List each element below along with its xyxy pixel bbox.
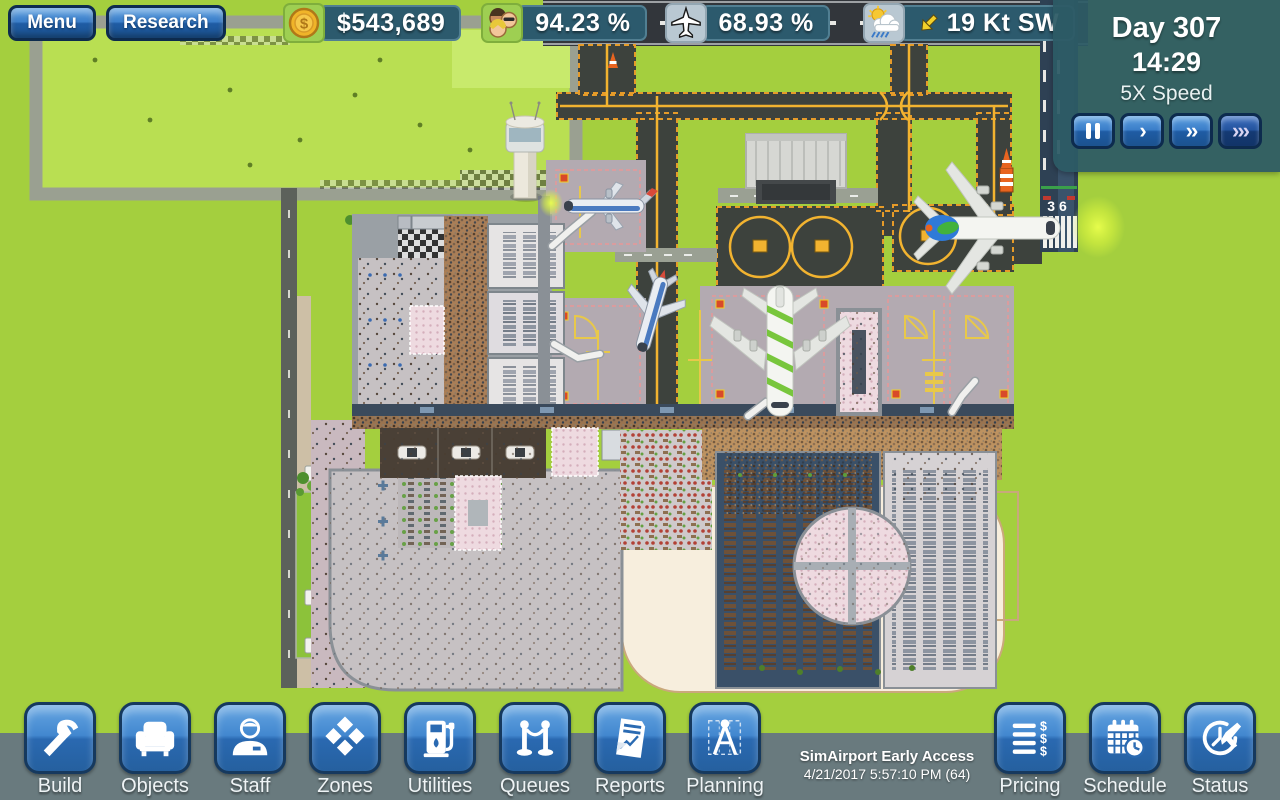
zones-button[interactable] <box>309 702 381 774</box>
circle-room <box>794 508 910 624</box>
top-menu-bar: Menu Research <box>8 5 226 41</box>
build-button[interactable] <box>24 702 96 774</box>
tool-label: Reports <box>595 775 665 798</box>
tool-pricing: $ $ $ Pricing <box>982 702 1078 798</box>
speed-1x-button[interactable]: › <box>1120 113 1164 149</box>
research-button[interactable]: Research <box>106 5 226 41</box>
svg-text:$: $ <box>1040 744 1047 758</box>
time-label: 14:29 <box>1053 47 1280 78</box>
time-panel: Day 307 14:29 5X Speed › ›› ››› <box>1053 0 1280 172</box>
status-bar: $ $543,689 94.23 % 68.93 % <box>283 3 1075 43</box>
weather-display: 19 Kt SW <box>863 3 1075 43</box>
grass-field[interactable] <box>36 22 576 194</box>
speed-label: 5X Speed <box>1053 82 1280 106</box>
passenger-satisfaction-display: 94.23 % <box>481 3 646 43</box>
tool-label: Planning <box>686 775 764 798</box>
airplane-icon <box>665 3 707 43</box>
flight-ontime-value: 68.93 % <box>701 5 830 41</box>
tool-label: Utilities <box>408 775 472 798</box>
hammer-icon <box>37 715 83 761</box>
calendar-clock-icon <box>1102 715 1148 761</box>
hangar[interactable] <box>746 134 846 204</box>
speed-5x-button[interactable]: ››› <box>1218 113 1262 149</box>
tool-utilities: Utilities <box>392 702 488 798</box>
drafting-compass-icon <box>702 715 748 761</box>
schedule-button[interactable] <box>1089 702 1161 774</box>
zones-diamonds-icon <box>322 715 368 761</box>
report-paper-icon <box>607 715 653 761</box>
flight-ontime-display: 68.93 % <box>665 3 830 43</box>
version-info: SimAirport Early Access 4/21/2017 5:57:1… <box>782 748 992 782</box>
tool-zones: Zones <box>297 702 393 798</box>
coin-icon: $ <box>283 3 325 43</box>
svg-text:$: $ <box>300 16 309 33</box>
speed-3x-button[interactable]: ›› <box>1169 113 1213 149</box>
menu-button[interactable]: Menu <box>8 5 96 41</box>
tool-planning: Planning <box>677 702 773 798</box>
planning-button[interactable] <box>689 702 761 774</box>
flight-status-icon <box>1197 715 1243 761</box>
staff-button[interactable] <box>214 702 286 774</box>
tool-staff: Staff <box>202 702 298 798</box>
tool-schedule: Schedule <box>1077 702 1173 798</box>
day-label: Day 307 <box>1053 12 1280 45</box>
fuel-pump-icon <box>417 715 463 761</box>
queue-stanchion-icon <box>512 715 558 761</box>
queues-button[interactable] <box>499 702 571 774</box>
version-build: 4/21/2017 5:57:10 PM (64) <box>782 766 992 782</box>
money-value: $543,689 <box>319 5 461 41</box>
tool-label: Zones <box>317 775 373 798</box>
money-display: $ $543,689 <box>283 3 461 43</box>
restroom <box>552 428 598 476</box>
objects-button[interactable] <box>119 702 191 774</box>
pause-icon <box>1086 116 1100 146</box>
staff-person-icon <box>227 715 273 761</box>
tool-reports: Reports <box>582 702 678 798</box>
tool-label: Queues <box>500 775 570 798</box>
passenger-satisfaction-value: 94.23 % <box>517 5 646 41</box>
wind-value: 19 Kt SW <box>899 5 1075 41</box>
tool-objects: Objects <box>107 702 203 798</box>
tool-label: Build <box>38 775 82 798</box>
pause-button[interactable] <box>1071 113 1115 149</box>
wind-direction-arrow <box>917 11 941 35</box>
game-screen: 36 <box>0 0 1280 800</box>
status-button[interactable] <box>1184 702 1256 774</box>
passengers-icon <box>481 3 523 43</box>
tool-label: Objects <box>121 775 189 798</box>
security-checkpoint <box>380 428 546 478</box>
tool-label: Staff <box>230 775 271 798</box>
restroom <box>410 306 444 354</box>
tool-label: Schedule <box>1083 775 1166 798</box>
armchair-icon <box>132 715 178 761</box>
tool-queues: Queues <box>487 702 583 798</box>
tool-build: Build <box>12 702 108 798</box>
runway-number: 36 <box>1047 198 1071 214</box>
tool-label: Status <box>1192 775 1249 798</box>
tool-status: Status <box>1172 702 1268 798</box>
reports-button[interactable] <box>594 702 666 774</box>
tool-label: Pricing <box>999 775 1060 798</box>
pricing-button[interactable]: $ $ $ <box>994 702 1066 774</box>
version-title: SimAirport Early Access <box>782 748 992 765</box>
weather-icon <box>863 3 905 43</box>
utilities-button[interactable] <box>404 702 476 774</box>
price-list-icon: $ $ $ <box>1007 715 1053 761</box>
